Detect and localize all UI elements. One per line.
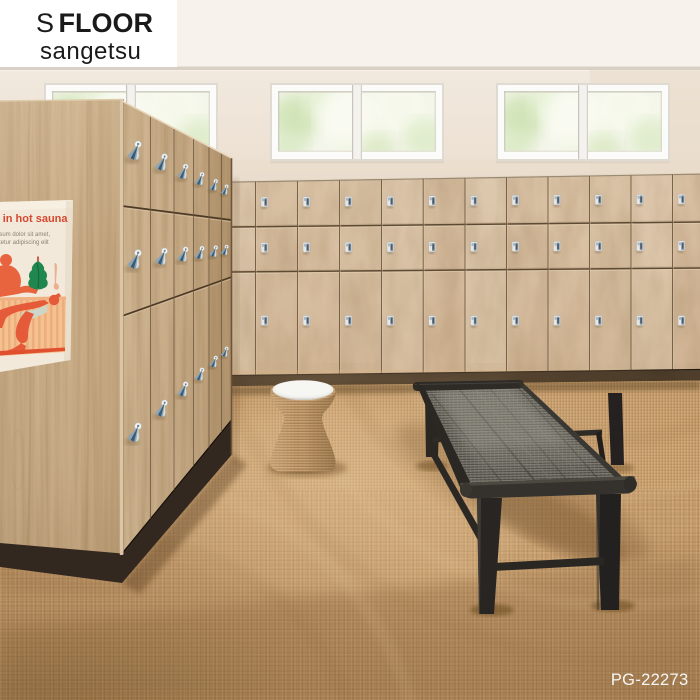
svg-text:ctetur adipiscing elit: ctetur adipiscing elit	[0, 240, 49, 246]
svg-text:psum dolor sit amet,: psum dolor sit amet,	[0, 232, 50, 238]
svg-text:t in hot sauna: t in hot sauna	[0, 213, 68, 225]
